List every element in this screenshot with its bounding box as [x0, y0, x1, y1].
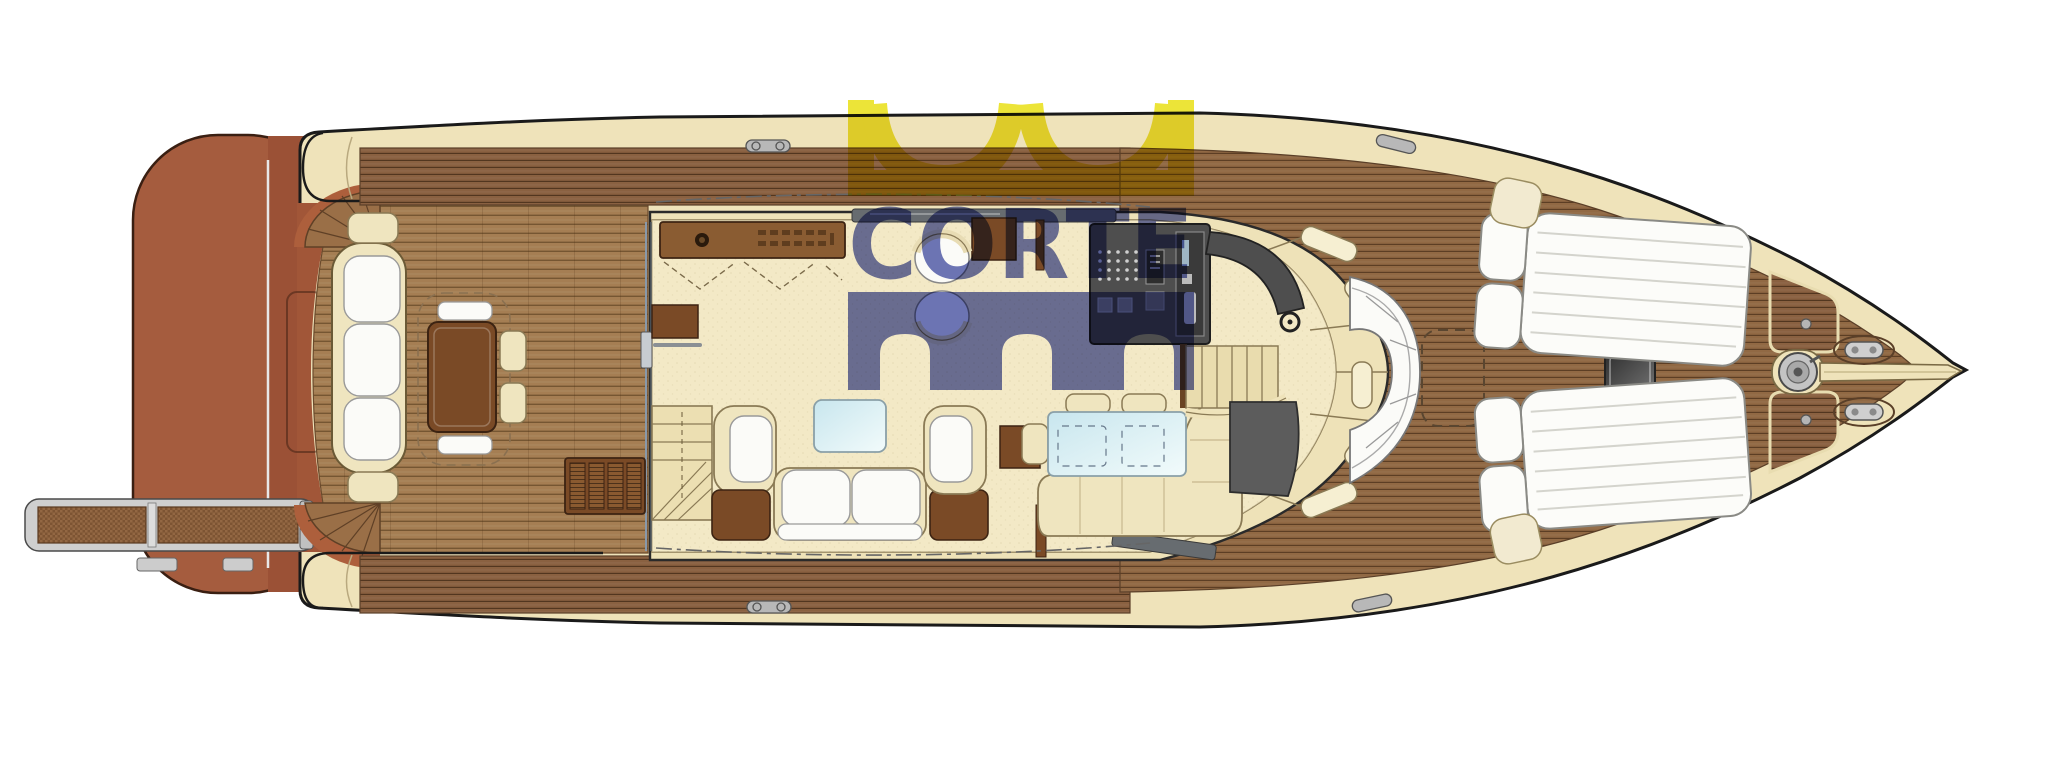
transom-sofa: [332, 213, 406, 502]
cockpit-table: [428, 322, 496, 432]
watermark-text: CORTE: [848, 189, 1194, 301]
salon-armchair-aft: [714, 406, 776, 494]
anchor-channel: [1820, 363, 1961, 381]
side-table: [930, 490, 988, 540]
sun-pad-port: [1473, 209, 1752, 367]
dining-chair: [1122, 394, 1166, 414]
passerelle-joint: [148, 503, 156, 547]
coffee-table: [814, 400, 886, 452]
cockpit-chair: [500, 383, 526, 423]
louvered-locker: [565, 458, 645, 514]
companionway-panel: [1230, 402, 1299, 496]
side-table: [712, 490, 770, 540]
platform-step: [223, 558, 253, 571]
salon-sideboard: [660, 222, 845, 258]
salon-armchair-fwd: [924, 406, 986, 494]
deck-plan-drawing: CORTE: [0, 0, 2048, 760]
door-side-cabinet: [652, 305, 698, 338]
sun-pad-starboard: [1474, 377, 1753, 533]
dining-chair: [1066, 394, 1110, 414]
side-deck-starboard: [360, 556, 1130, 613]
stairs-to-lower-deck-aft: [652, 406, 712, 520]
sun-pad-backrest: [1474, 396, 1524, 463]
platform-step: [137, 558, 177, 571]
cockpit-bench: [438, 436, 492, 454]
sun-pad-backrest: [1473, 283, 1523, 350]
yacht-deck-plan: CORTE: [0, 0, 2048, 760]
cockpit-chair: [500, 331, 526, 371]
dining-chair: [1022, 424, 1048, 464]
windlass: [1772, 350, 1824, 394]
salon-sofa: [774, 468, 926, 540]
cockpit-bench: [438, 302, 492, 320]
